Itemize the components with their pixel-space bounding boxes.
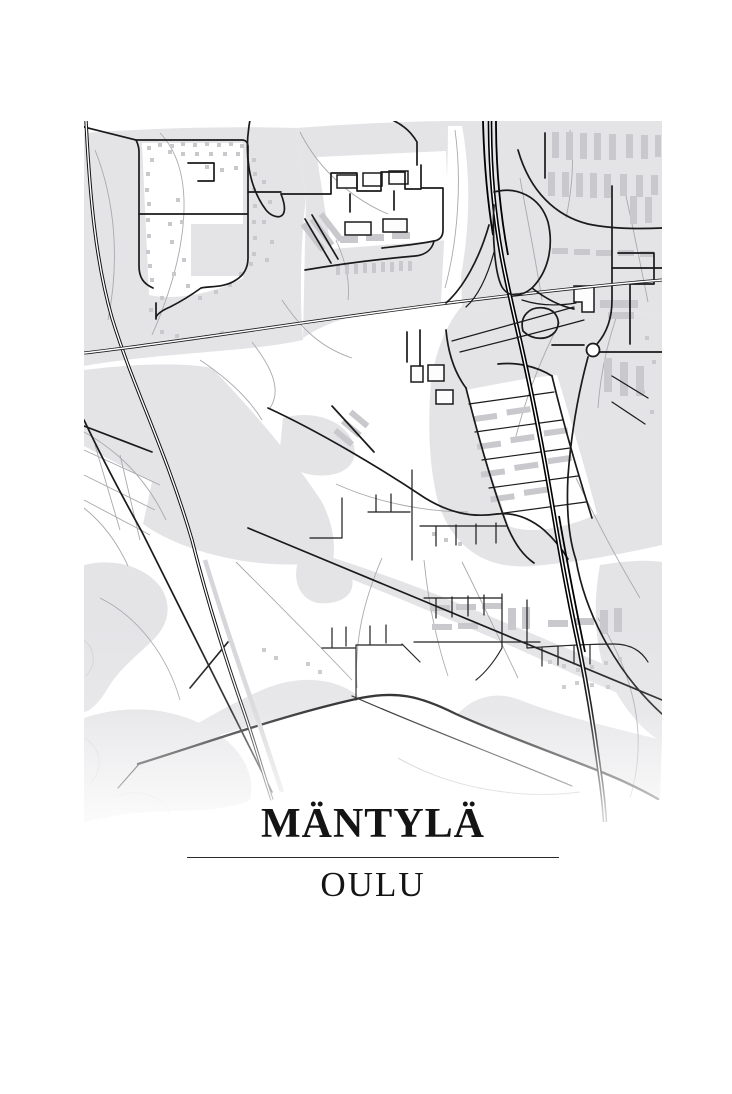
page-title: MÄNTYLÄ bbox=[84, 800, 662, 848]
title-divider bbox=[187, 857, 559, 858]
city-map-graphic bbox=[0, 0, 732, 1094]
page-subtitle: OULU bbox=[84, 866, 662, 905]
roundabout-icon bbox=[587, 344, 600, 357]
title-block: MÄNTYLÄ OULU bbox=[84, 800, 662, 905]
map-poster: MÄNTYLÄ OULU bbox=[0, 0, 732, 1094]
